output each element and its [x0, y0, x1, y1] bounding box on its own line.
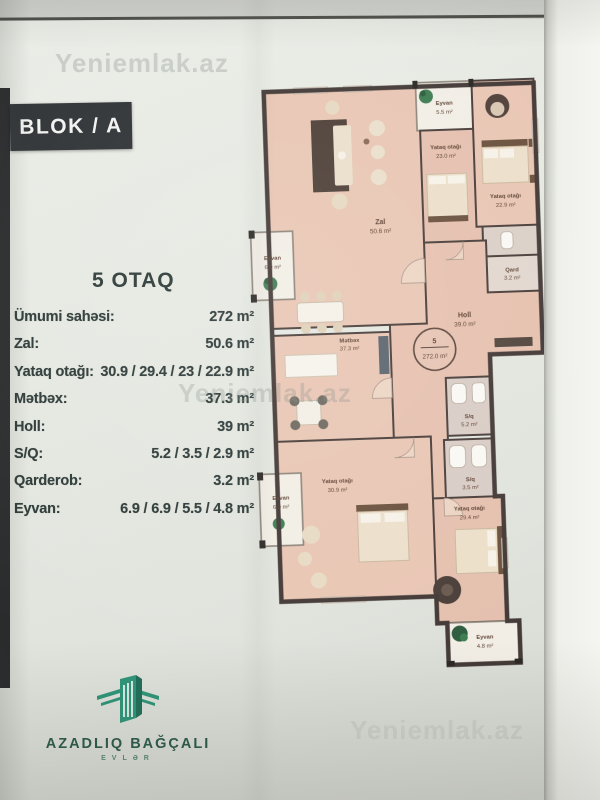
svg-text:22.9 m²: 22.9 m² [496, 202, 516, 209]
label-sq2: S/q [466, 477, 476, 483]
label-metbex: Mətbəx [339, 338, 360, 345]
svg-text:6.9 m²: 6.9 m² [264, 265, 281, 272]
spec-value: 272 m² [209, 309, 254, 325]
block-label: BLOK / A [19, 114, 123, 140]
svg-text:6.9 m²: 6.9 m² [273, 504, 290, 511]
spec-label: Mətbəx: [14, 391, 67, 407]
label-eyvan-left-lower: Eyvan [272, 495, 290, 502]
spec-value: 5.2 / 3.5 / 2.9 m² [151, 446, 254, 462]
spec-row-metbex: Mətbəx: 37.3 m² [14, 391, 254, 418]
spec-row-eyvan: Eyvan: 6.9 / 6.9 / 5.5 / 4.8 m² [14, 501, 254, 528]
svg-text:23.0 m²: 23.0 m² [436, 153, 456, 160]
svg-text:37.3 m²: 37.3 m² [340, 346, 360, 353]
svg-text:3.2 m²: 3.2 m² [504, 275, 521, 282]
block-label-box: BLOK / A [10, 102, 133, 151]
spec-row-zal: Zal: 50.6 m² [14, 336, 254, 363]
building-wings-icon [95, 672, 161, 726]
total-area-badge: 5 272.0 m² [413, 328, 456, 371]
spec-value: 37.3 m² [205, 391, 254, 407]
svg-text:4.8 m²: 4.8 m² [477, 643, 494, 650]
spec-value: 6.9 / 6.9 / 5.5 / 4.8 m² [120, 501, 254, 517]
spec-row-umumi: Ümumi sahəsi: 272 m² [14, 309, 254, 336]
label-yataq-229: Yataq otağı [490, 193, 522, 200]
spec-row-qarderob: Qarderob: 3.2 m² [14, 473, 254, 500]
label-holl: Holl [458, 312, 472, 319]
page-right-edge [544, 0, 600, 800]
label-yataq-309: Yataq otağı [322, 478, 354, 485]
svg-text:3.5 m²: 3.5 m² [462, 485, 479, 492]
label-yataq-23: Yataq otağı [430, 144, 462, 151]
svg-text:50.6 m²: 50.6 m² [370, 228, 392, 236]
spec-row-yataq: Yataq otağı: 30.9 / 29.4 / 23 / 22.9 m² [14, 364, 254, 391]
dining-table [297, 301, 344, 323]
badge-area: 272.0 m² [422, 353, 447, 361]
kitchen-cabinet [378, 336, 389, 374]
brand-subtitle: EVLƏR [28, 755, 228, 762]
floor-plan: 5 272.0 m² Zal 50.6 m² Eyvan 5.5 m² Yata… [243, 74, 559, 676]
label-eyvan-bottom: Eyvan [476, 634, 494, 641]
spec-label: Zal: [14, 336, 39, 352]
label-sq1: S/q [465, 414, 475, 420]
binder-strip [0, 88, 10, 688]
apartment-title: 5 OTAQ [92, 269, 175, 293]
spec-value: 50.6 m² [205, 336, 254, 352]
kitchen-island [285, 354, 338, 378]
svg-text:5.5 m²: 5.5 m² [436, 110, 453, 117]
holl-bench [494, 337, 532, 347]
spec-label: S/Q: [14, 446, 43, 462]
spec-row-holl: Holl: 39 m² [14, 419, 254, 446]
spec-value: 3.2 m² [213, 473, 254, 489]
spec-value: 30.9 / 29.4 / 23 / 22.9 m² [100, 364, 254, 380]
brand-name: AZADLIQ BAĞÇALI [28, 736, 228, 752]
spec-row-sq: S/Q: 5.2 / 3.5 / 2.9 m² [14, 446, 254, 473]
badge-number: 5 [432, 338, 436, 345]
kitchen-table [296, 400, 321, 425]
spec-list: Ümumi sahəsi: 272 m² Zal: 50.6 m² Yataq … [14, 309, 254, 528]
spec-label: Qarderob: [14, 473, 82, 489]
spec-label: Yataq otağı: [14, 364, 94, 380]
svg-text:5.2 m²: 5.2 m² [461, 422, 478, 429]
svg-text:39.0 m²: 39.0 m² [454, 321, 476, 329]
spec-value: 39 m² [217, 419, 254, 435]
spec-label: Holl: [14, 419, 45, 435]
label-eyvan-left-upper: Eyvan [264, 256, 282, 263]
developer-logo: AZADLIQ BAĞÇALI EVLƏR [28, 672, 228, 762]
brochure-photo: Yeniemlak.az BLOK / A 5 OTAQ Ümumi sahəs… [0, 0, 600, 800]
spec-label: Ümumi sahəsi: [14, 309, 115, 325]
spec-label: Eyvan: [14, 501, 60, 517]
svg-text:30.9 m²: 30.9 m² [328, 487, 348, 494]
label-eyvan-top: Eyvan [436, 100, 454, 107]
svg-text:29.4 m²: 29.4 m² [460, 515, 480, 522]
label-yataq-294: Yataq otağı [454, 506, 486, 513]
label-zal: Zal [375, 219, 385, 226]
label-qarderob: Qard [505, 267, 519, 273]
